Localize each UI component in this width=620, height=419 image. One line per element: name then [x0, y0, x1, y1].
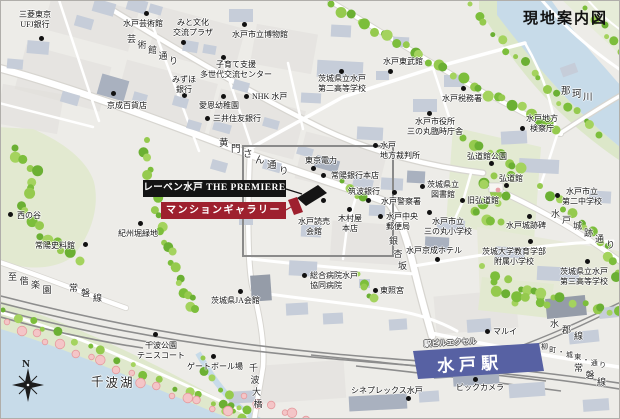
poi-dot-mitsubishi-ufj-bank [39, 36, 44, 41]
poi-label-mito-culture-plaza: みと文化交流プラザ [173, 18, 213, 37]
property-name-label: レーベン水戸 THE PREMIERE [143, 180, 286, 197]
poi-label-tepco: 東京電力 [305, 156, 337, 166]
poi-dot-mito-2nd-high-school [339, 69, 344, 74]
poi-label-kodokan: 弘道館 [499, 174, 523, 184]
poi-dot-castle-ruins-monument [527, 214, 532, 219]
poi-dot-mito-2nd-junior-high [555, 193, 560, 198]
map-canvas: 現地案内図 N 三菱東京UFJ銀行水戸芸術館みと文化交流プラザ水戸市立博物館子育… [0, 0, 620, 419]
poi-label-toshogu-shrine: 東照宮 [380, 286, 404, 296]
poi-label-mito-2nd-high-school: 茨城県立水戸第二高等学校 [318, 74, 366, 93]
building [389, 318, 408, 330]
poi-label-mito-city-museum: 水戸市立博物館 [232, 30, 288, 40]
poi-label-joyo-bank-hq: 常陽銀行本店 [331, 171, 379, 181]
building [413, 99, 437, 112]
building [407, 171, 426, 184]
poi-dot-nishi-no-tani [8, 212, 13, 217]
building [229, 9, 253, 22]
poi-label-kimuraya-honten: 木村屋本店 [338, 214, 362, 233]
building [323, 312, 344, 324]
poi-dot-mito-prosecutors-office [520, 126, 525, 131]
poi-dot-joyo-history-museum [83, 242, 88, 247]
poi-label-central-post-office: 水戸中央郵便局 [386, 212, 418, 231]
base-map [1, 1, 620, 419]
poi-label-cineplex-mito: シネプレックス水戸 [351, 386, 423, 396]
poi-dot-aion-kindergarten [221, 94, 226, 99]
poi-label-mito-keisei-hotel: 水戸京成ホテル [406, 246, 462, 256]
poi-dot-yomiuri-kaikan [321, 198, 326, 203]
poi-label-castle-ruins-monument: 水戸城跡碑 [506, 221, 546, 231]
map-title: 現地案内図 [523, 7, 608, 28]
poi-dot-nhk-mito [244, 94, 249, 99]
poi-label-mito-2nd-junior-high: 水戸市立第二中学校 [562, 187, 602, 206]
poi-dot-senba-park-tennis-court [153, 332, 158, 337]
poi-label-kodokan-park: 弘道館公園 [467, 152, 507, 162]
poi-label-ibaraki-ja-kaikan: 茨城県JA会館 [211, 296, 260, 306]
poi-dot-kishubori-green [138, 221, 143, 226]
poi-label-smbc-bank: 三井住友銀行 [213, 114, 261, 124]
poi-label-mizuho-bank: みずほ銀行 [172, 75, 196, 94]
poi-dot-pref-library [420, 184, 425, 189]
poi-label-old-kodokan: 旧弘道館 [467, 196, 499, 206]
building [509, 382, 546, 398]
poi-dot-tsukuba-bank [366, 198, 371, 203]
poi-dot-mito-tobukan [388, 69, 393, 74]
poi-dot-mito-city-museum [242, 22, 247, 27]
poi-label-mito-3rd-high-school: 茨城県立水戸第三高等学校 [560, 267, 608, 286]
poi-dot-sannomaru-elementary [427, 210, 432, 215]
poi-dot-ibaraki-ja-kaikan [238, 289, 243, 294]
building [501, 130, 528, 144]
poi-dot-keisei-department-store [111, 91, 116, 96]
mito-station-label: 水戸駅 [436, 348, 503, 376]
poi-label-mito-prosecutors-office: 水戸地方検察庁 [526, 114, 558, 133]
poi-label-sannomaru-elementary: 水戸市立三の丸小学校 [424, 217, 472, 236]
poi-dot-mito-kyodo-hospital [302, 273, 307, 278]
building [301, 92, 321, 103]
building [357, 126, 384, 140]
poi-dot-ibaraki-univ-elementary [528, 239, 533, 244]
poi-label-pref-library: 茨城県立図書館 [427, 180, 459, 199]
poi-label-bic-camera: ビックカメラ [456, 383, 504, 393]
poi-label-marui: マルイ [493, 327, 517, 337]
building [26, 40, 49, 55]
poi-dot-smbc-bank [205, 116, 210, 121]
building [349, 393, 408, 411]
poi-label-kishubori-green: 紀州堀緑地 [118, 229, 158, 239]
poi-dot-mito-district-court [373, 143, 378, 148]
poi-label-gateball-field: ゲートボール場 [187, 362, 243, 372]
poi-dot-mito-tax-office [461, 86, 466, 91]
building [583, 398, 610, 412]
poi-dot-cineplex-mito [406, 396, 411, 401]
poi-label-mito-tax-office: 水戸税務署 [442, 94, 482, 104]
poi-dot-mito-culture-plaza [181, 40, 186, 45]
poi-label-mito-art-museum: 水戸芸術館 [123, 19, 163, 29]
poi-label-senba-park-tennis-court: 千波公園テニスコート [137, 341, 185, 360]
poi-dot-mito-keisei-hotel [435, 257, 440, 262]
poi-dot-city-hall-annex [427, 111, 432, 116]
compass-north-label: N [22, 358, 30, 370]
poi-dot-kosodate-shien-center [221, 55, 226, 60]
poi-dot-kimuraya-honten [347, 207, 352, 212]
kodokan-hall [489, 183, 503, 192]
poi-dot-mito-police-station [392, 190, 397, 195]
poi-dot-bic-camera [473, 377, 478, 382]
poi-label-kosodate-shien-center: 子育て支援多世代交流センター [200, 60, 272, 79]
poi-label-yomiuri-kaikan: 水戸読売会館 [298, 217, 330, 236]
poi-dot-marui [485, 329, 490, 334]
mansion-gallery-label: マンションギャラリー [161, 202, 286, 219]
poi-label-keisei-department-store: 京成百貨店 [107, 101, 147, 111]
poi-dot-toshogu-shrine [373, 288, 378, 293]
poi-label-tsukuba-bank: 筑波銀行 [348, 187, 380, 197]
poi-dot-mito-art-museum [144, 11, 149, 16]
poi-dot-mito-3rd-high-school [585, 259, 590, 264]
building [286, 302, 309, 315]
poi-dot-old-kodokan [460, 198, 465, 203]
poi-label-mito-police-station: 水戸警察署 [381, 197, 421, 207]
poi-label-joyo-history-museum: 常陽史料館 [35, 241, 75, 251]
poi-label-mito-tobukan: 水戸東武館 [383, 57, 423, 67]
building [331, 24, 352, 37]
poi-label-aion-kindergarten: 愛恩幼稚園 [199, 101, 239, 111]
poi-label-mito-district-court: 水戸地方裁判所 [380, 141, 420, 160]
poi-label-mito-kyodo-hospital: 総合病院水戸協同病院 [310, 271, 358, 290]
building [376, 71, 389, 80]
poi-dot-joyo-bank-hq [321, 173, 326, 178]
poi-dot-central-post-office [378, 214, 383, 219]
poi-dot-gateball-field [211, 354, 216, 359]
poi-label-ibaraki-univ-elementary: 茨城大学教育学部附属小学校 [482, 247, 546, 266]
poi-label-mitsubishi-ufj-bank: 三菱東京UFJ銀行 [19, 10, 51, 29]
poi-label-nishi-no-tani: 西の谷 [17, 211, 41, 221]
poi-label-nhk-mito: NHK 水戸 [252, 92, 287, 102]
building [7, 58, 24, 69]
poi-label-city-hall-annex: 水戸市役所三の丸臨時庁舎 [407, 117, 463, 136]
poi-dot-tepco [311, 166, 316, 171]
